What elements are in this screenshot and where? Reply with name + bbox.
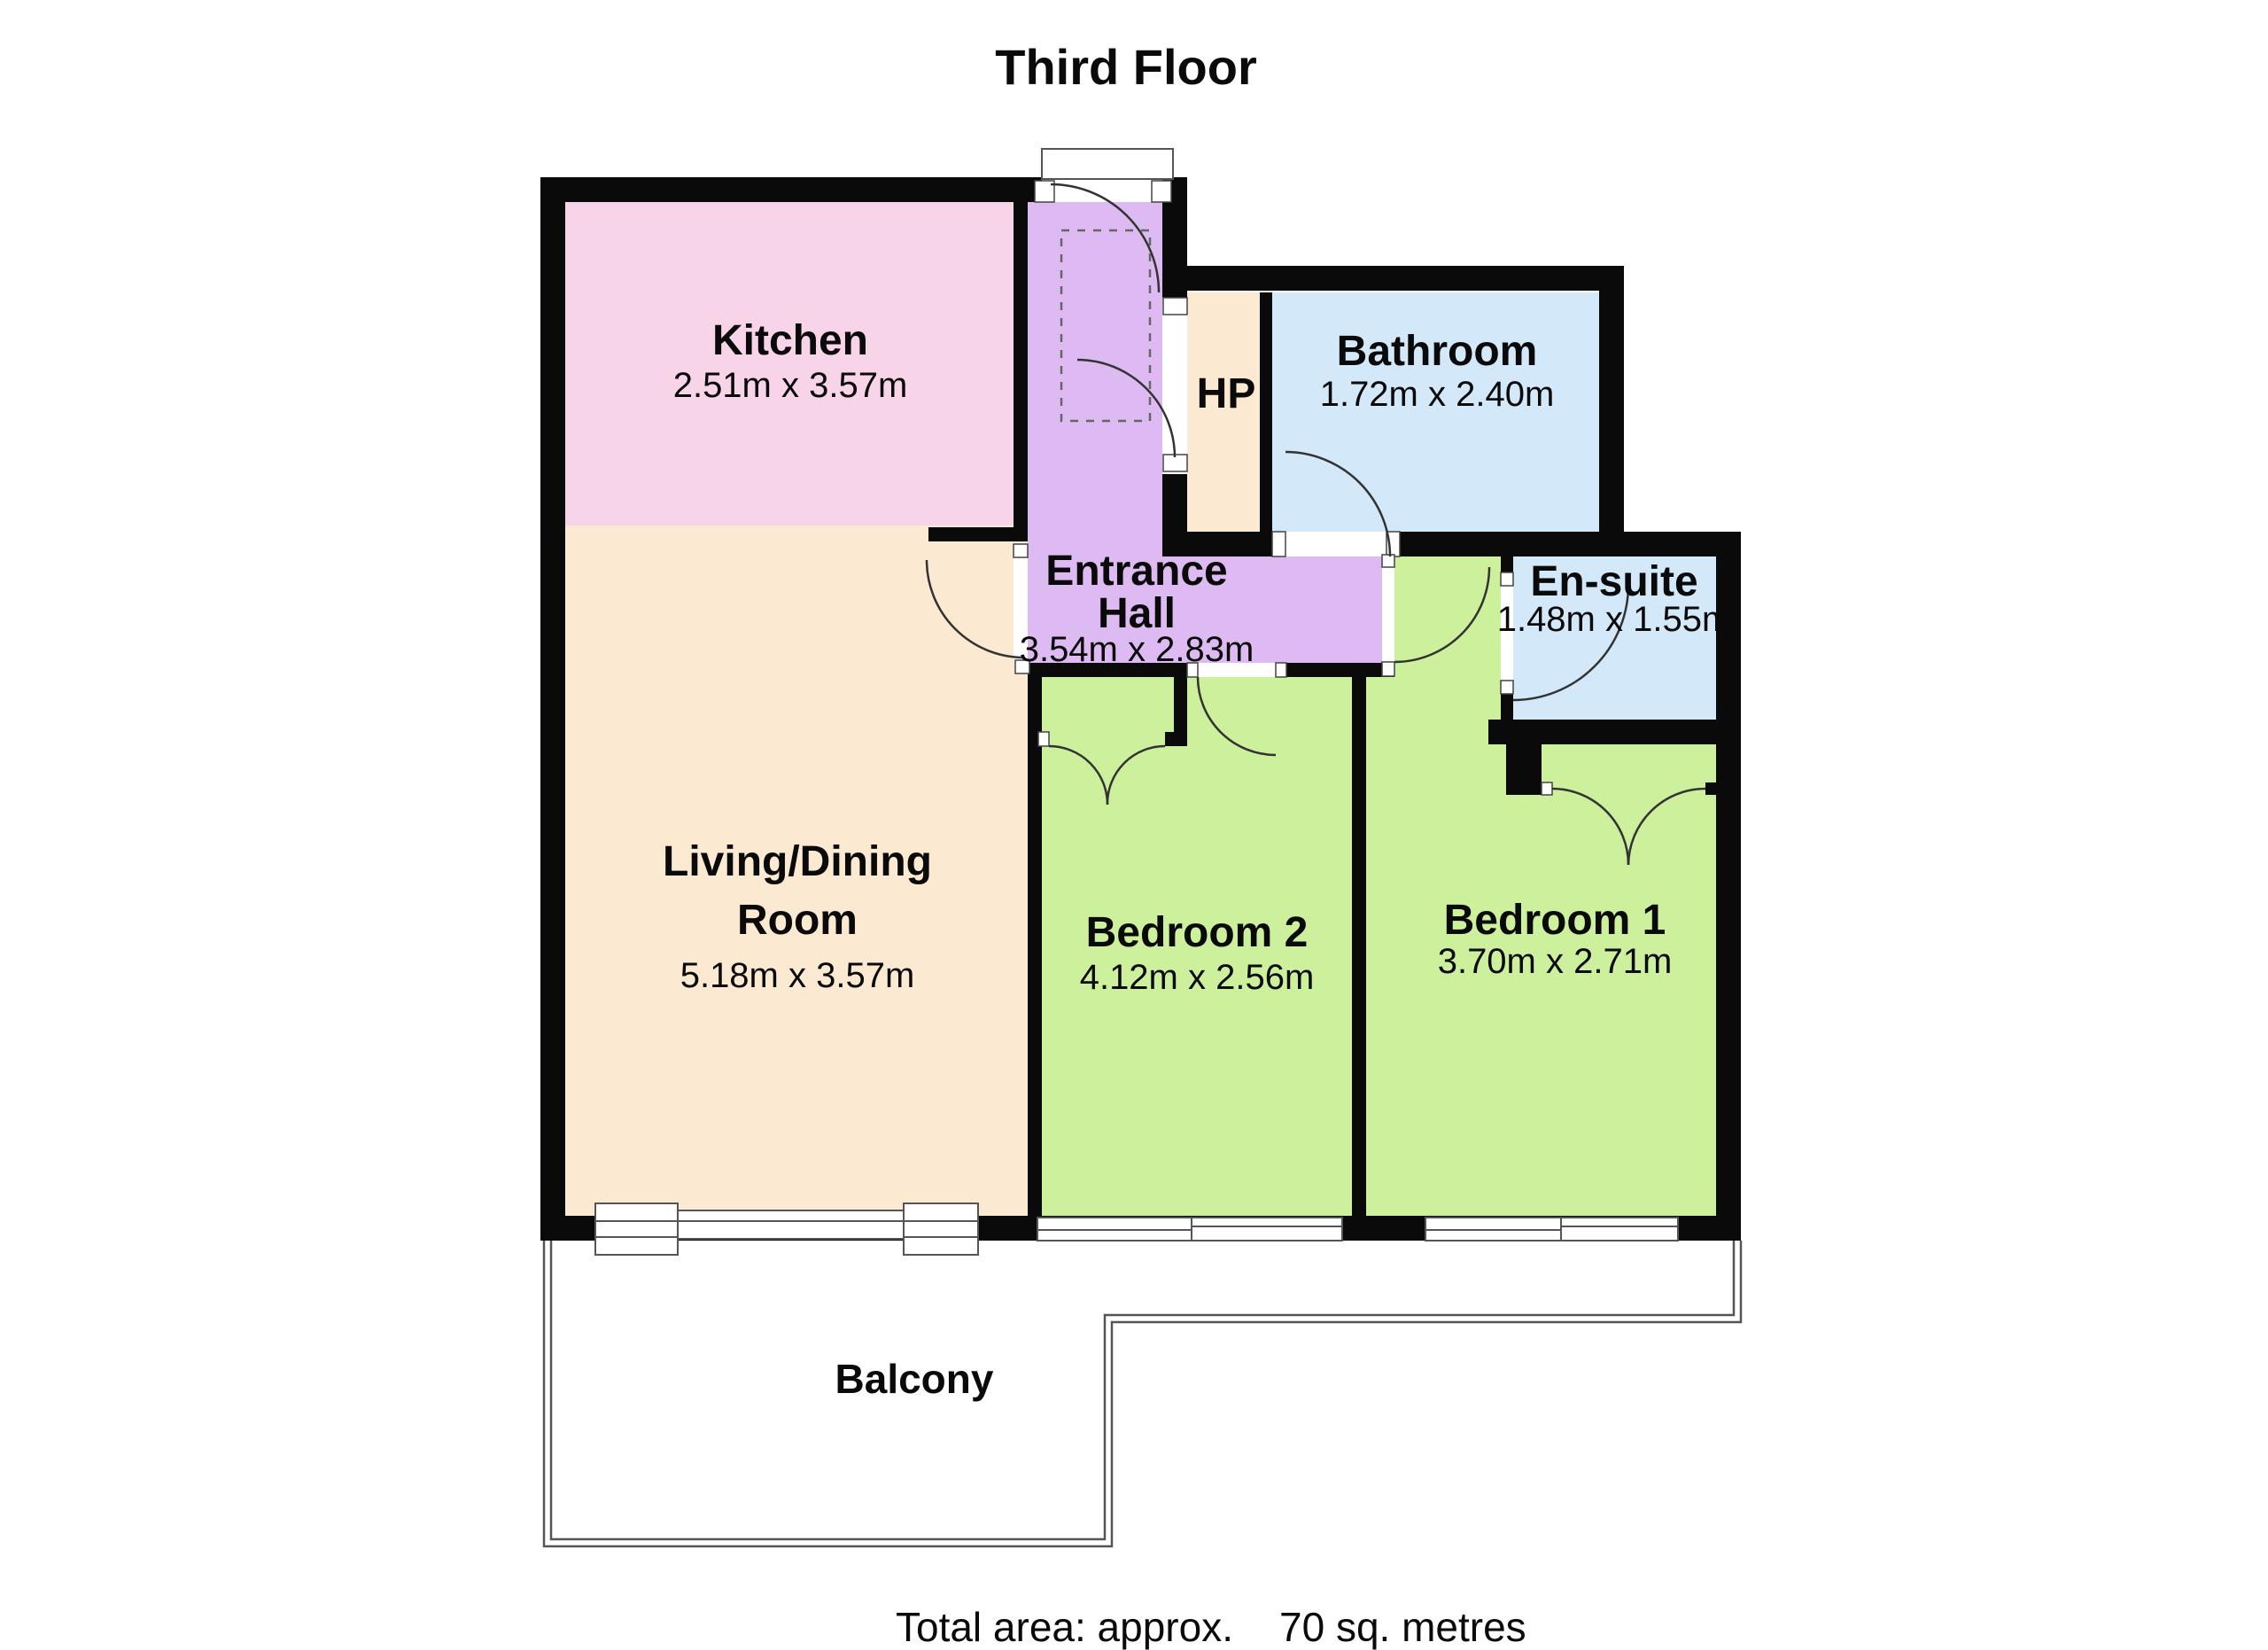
bedroom2-dims: 4.12m x 2.56m (1080, 958, 1315, 997)
bedroom1-dims: 3.70m x 2.71m (1438, 942, 1673, 981)
living-window-box-right (904, 1203, 978, 1255)
hp-label: HP (1197, 370, 1256, 417)
entrance-threshold (1042, 149, 1173, 179)
bathroom-dims: 1.72m x 2.40m (1320, 375, 1555, 414)
entrance-hall-dims: 3.54m x 2.83m (1020, 630, 1254, 669)
bathroom-label: Bathroom (1337, 328, 1538, 375)
floorplan-drawing: Third Floor Kitchen 2.51m x 3.57m Bathro… (0, 0, 2268, 1650)
living-dining-label-line1: Living/Dining (663, 838, 932, 885)
living-dining-dims: 5.18m x 3.57m (680, 956, 915, 995)
floorplan-page: Third Floor Kitchen 2.51m x 3.57m Bathro… (0, 0, 2268, 1650)
living-dining-label-line2: Room (737, 897, 858, 944)
total-area-label: Total area: approx. (896, 1604, 1233, 1650)
balcony-label: Balcony (835, 1356, 994, 1402)
living-window-mid (678, 1210, 904, 1239)
living-window-box-left (595, 1203, 678, 1255)
bedroom1-vestibule-floor (1394, 556, 1501, 677)
bedroom1-label: Bedroom 1 (1444, 897, 1666, 944)
page-title: Third Floor (995, 39, 1257, 95)
ensuite-label: En-suite (1530, 558, 1697, 605)
kitchen-label: Kitchen (712, 317, 868, 364)
total-area-value: 70 sq. metres (1279, 1604, 1526, 1650)
ensuite-dims: 1.48m x 1.55m (1497, 600, 1732, 639)
entrance-hall-label-line1: Entrance (1045, 548, 1227, 595)
bedroom2-label: Bedroom 2 (1086, 909, 1309, 956)
kitchen-dims: 2.51m x 3.57m (673, 366, 908, 405)
